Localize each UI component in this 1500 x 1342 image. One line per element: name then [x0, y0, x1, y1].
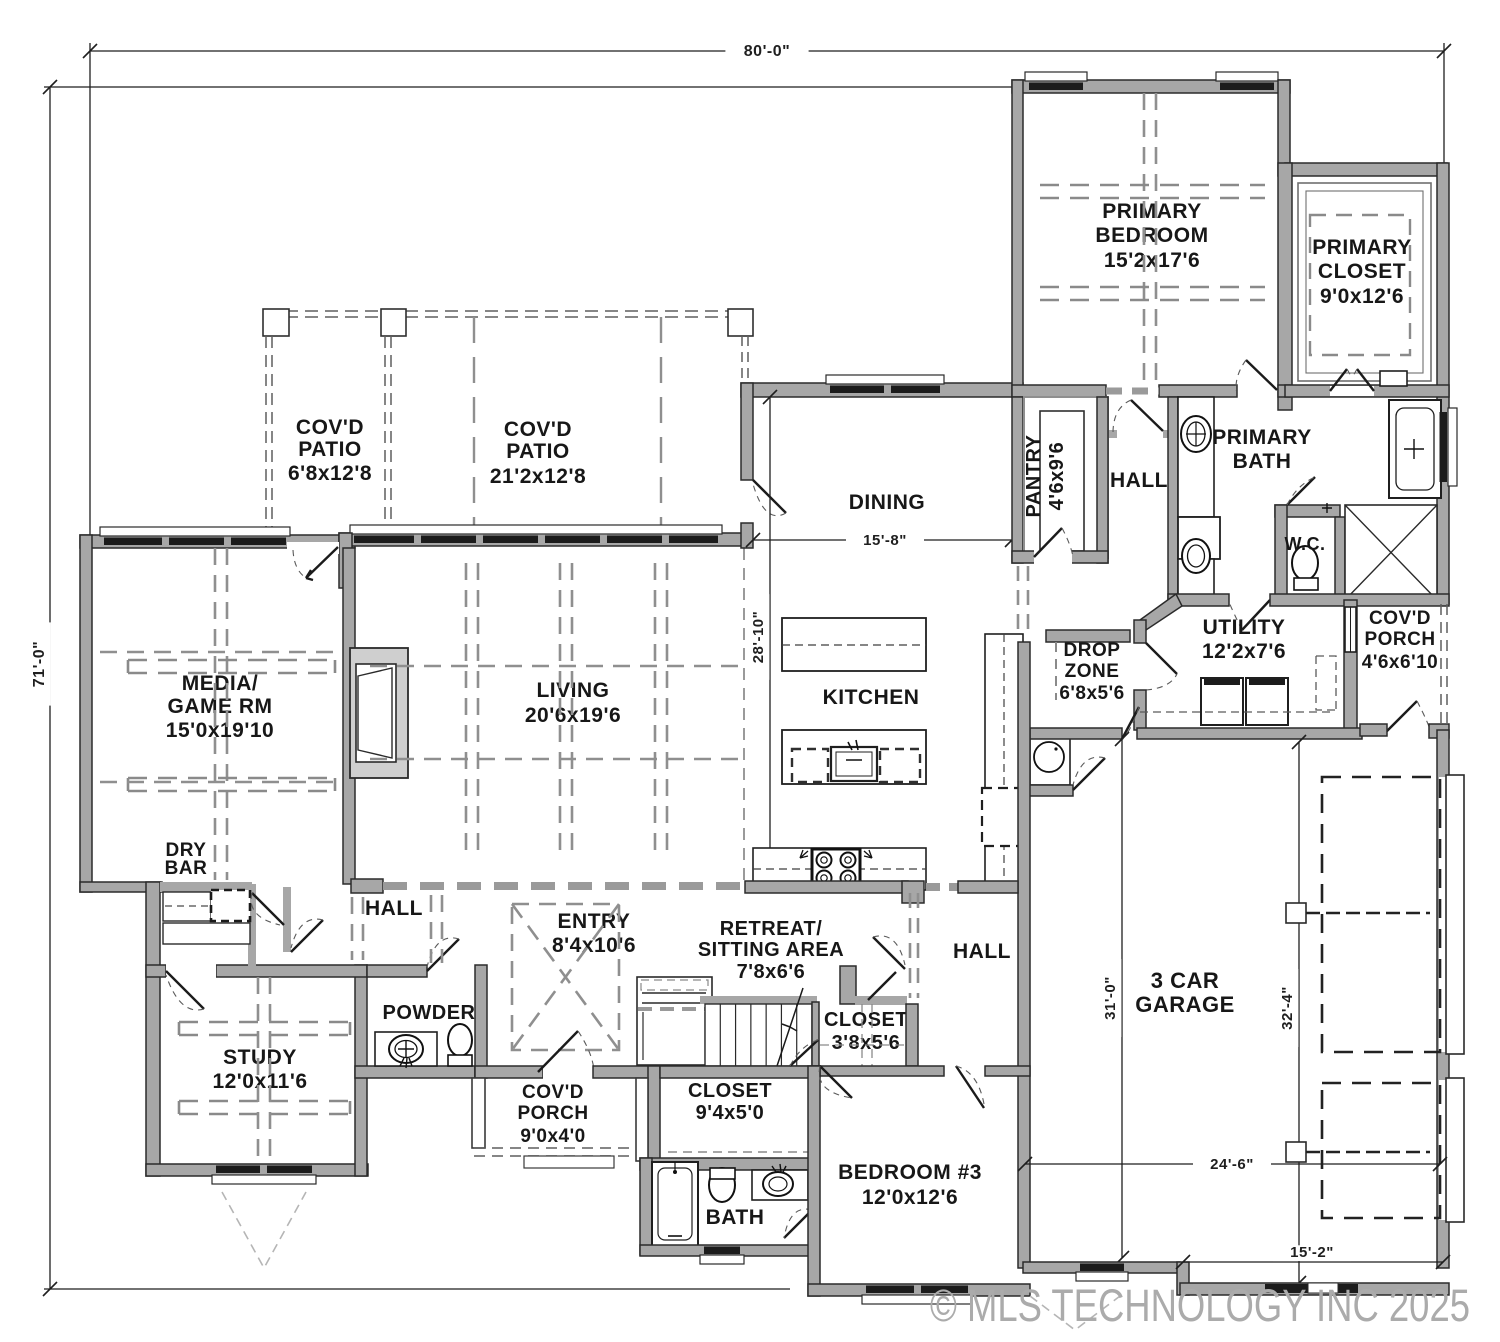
svg-text:28'-10": 28'-10": [750, 611, 767, 664]
svg-text:4'6x9'6: 4'6x9'6: [1046, 442, 1068, 511]
svg-text:9'0x12'6: 9'0x12'6: [1320, 285, 1404, 308]
svg-text:POWDER: POWDER: [383, 1002, 476, 1024]
svg-text:GAME RM: GAME RM: [168, 695, 273, 718]
svg-text:3 CAR: 3 CAR: [1151, 968, 1220, 993]
svg-text:KITCHEN: KITCHEN: [823, 686, 920, 709]
svg-text:COV'D: COV'D: [522, 1082, 584, 1103]
svg-text:PRIMARY: PRIMARY: [1212, 426, 1312, 449]
svg-text:DINING: DINING: [849, 491, 926, 514]
svg-text:CLOSET: CLOSET: [824, 1009, 908, 1031]
svg-text:STUDY: STUDY: [223, 1046, 297, 1069]
svg-text:PORCH: PORCH: [1364, 629, 1435, 650]
svg-text:COV'D: COV'D: [1369, 608, 1431, 629]
svg-text:15'-2": 15'-2": [1290, 1244, 1334, 1261]
svg-text:SITTING AREA: SITTING AREA: [698, 939, 844, 961]
svg-text:W.C.: W.C.: [1285, 534, 1326, 554]
svg-text:31'-0": 31'-0": [1102, 976, 1119, 1020]
svg-text:15'2x17'6: 15'2x17'6: [1104, 249, 1200, 272]
svg-text:MEDIA/: MEDIA/: [182, 672, 259, 695]
svg-text:PATIO: PATIO: [298, 438, 362, 461]
svg-text:PRIMARY: PRIMARY: [1312, 236, 1412, 259]
svg-text:15'0x19'10: 15'0x19'10: [166, 719, 274, 742]
svg-text:12'0x12'6: 12'0x12'6: [862, 1186, 958, 1209]
svg-text:GARAGE: GARAGE: [1135, 992, 1235, 1017]
svg-text:PORCH: PORCH: [517, 1103, 588, 1124]
svg-text:UTILITY: UTILITY: [1203, 616, 1286, 639]
svg-text:80'-0": 80'-0": [744, 43, 790, 60]
svg-text:© MLS TECHNOLOGY INC 2025: © MLS TECHNOLOGY INC 2025: [930, 1280, 1470, 1331]
svg-text:32'-4": 32'-4": [1279, 986, 1296, 1030]
svg-text:BEDROOM #3: BEDROOM #3: [838, 1161, 982, 1184]
svg-text:HALL: HALL: [1110, 469, 1168, 492]
svg-text:BATH: BATH: [1233, 450, 1292, 473]
svg-text:DROP: DROP: [1064, 640, 1121, 661]
svg-text:BAR: BAR: [165, 858, 208, 879]
svg-text:7'8x6'6: 7'8x6'6: [737, 961, 806, 983]
svg-text:12'0x11'6: 12'0x11'6: [212, 1070, 307, 1093]
svg-text:12'2x7'6: 12'2x7'6: [1202, 640, 1286, 663]
svg-text:6'8x12'8: 6'8x12'8: [288, 462, 372, 485]
svg-text:PRIMARY: PRIMARY: [1102, 200, 1202, 223]
svg-text:ZONE: ZONE: [1065, 661, 1120, 682]
svg-text:9'4x5'0: 9'4x5'0: [696, 1102, 765, 1124]
svg-text:3'8x5'6: 3'8x5'6: [832, 1032, 901, 1054]
svg-text:PANTRY: PANTRY: [1023, 434, 1045, 517]
svg-text:RETREAT/: RETREAT/: [720, 918, 823, 940]
svg-text:COV'D: COV'D: [296, 416, 364, 439]
svg-text:COV'D: COV'D: [504, 418, 572, 441]
svg-text:71'-0": 71'-0": [31, 641, 48, 687]
svg-text:BATH: BATH: [706, 1206, 765, 1229]
svg-text:CLOSET: CLOSET: [688, 1080, 772, 1102]
svg-text:15'-8": 15'-8": [863, 532, 907, 549]
svg-text:HALL: HALL: [953, 940, 1011, 963]
svg-text:PATIO: PATIO: [506, 440, 570, 463]
svg-text:24'-6": 24'-6": [1210, 1156, 1254, 1173]
svg-text:21'2x12'8: 21'2x12'8: [490, 465, 586, 488]
svg-text:4'6x6'10: 4'6x6'10: [1362, 652, 1438, 673]
svg-text:HALL: HALL: [365, 897, 423, 920]
svg-text:CLOSET: CLOSET: [1318, 260, 1406, 283]
svg-text:6'8x5'6: 6'8x5'6: [1059, 683, 1124, 704]
svg-text:9'0x4'0: 9'0x4'0: [520, 1126, 585, 1147]
svg-text:BEDROOM: BEDROOM: [1095, 224, 1208, 247]
